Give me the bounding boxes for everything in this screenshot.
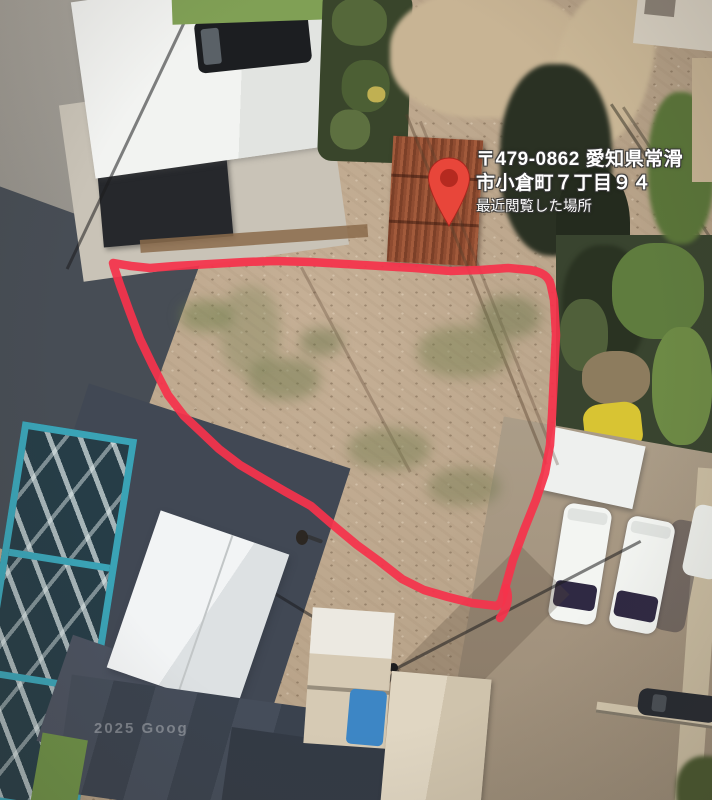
- plot-outline: [0, 0, 712, 800]
- place-label-line3: 最近閲覧した場所: [476, 198, 683, 217]
- pin-icon: [427, 156, 471, 228]
- place-label-line2: 市小倉町７丁目９４: [476, 172, 683, 196]
- map-pin[interactable]: [427, 156, 471, 228]
- satellite-map[interactable]: 2025 Goog 〒479-0862 愛知県常滑 市小倉町７丁目９４ 最近閲覧…: [0, 0, 712, 800]
- place-label-line1: 〒479-0862 愛知県常滑: [476, 148, 683, 172]
- pin-shape: [429, 158, 470, 226]
- place-label[interactable]: 〒479-0862 愛知県常滑 市小倉町７丁目９４ 最近閲覧した場所: [476, 148, 683, 217]
- pin-dot: [440, 169, 458, 187]
- plot-outline-path: [113, 261, 556, 606]
